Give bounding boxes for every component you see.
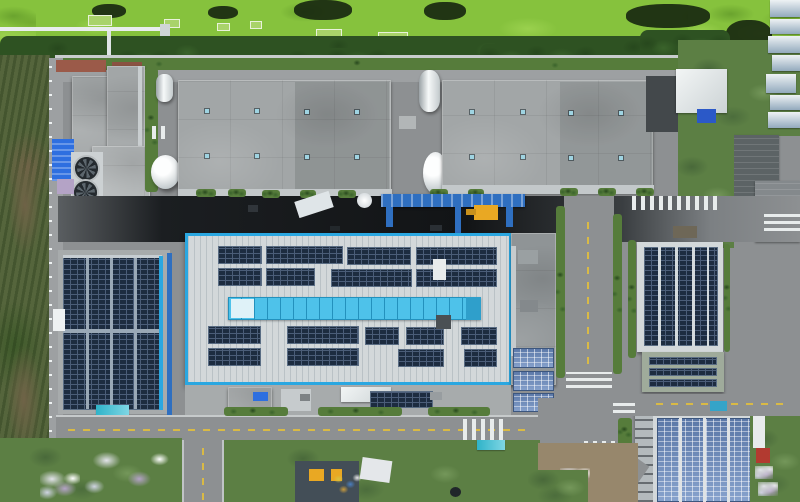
aerial-photo-solar-factory [0, 0, 800, 502]
solar-array [513, 371, 554, 391]
solar-array [416, 247, 497, 265]
skylight-dot [470, 155, 474, 159]
roof-vent [436, 315, 451, 329]
blue-tarp [253, 392, 268, 401]
white-truck [53, 309, 65, 331]
roof-vent [433, 259, 446, 280]
planter [228, 189, 246, 197]
warehouse-a-shade [295, 82, 389, 194]
gatehouse-roof [676, 69, 727, 113]
colorful-debris [330, 470, 364, 496]
panel-walkway [110, 257, 113, 409]
white-tank [156, 74, 173, 102]
crosswalk-dashes [152, 126, 170, 139]
gantry-crane-beam [381, 194, 525, 207]
open-water-patch [424, 2, 466, 20]
solar-array [266, 246, 343, 264]
solar-array [287, 348, 359, 366]
skylight-dot [569, 156, 573, 160]
verge [724, 244, 730, 352]
canal-platform [88, 15, 112, 26]
perimeter-hedge [60, 58, 720, 70]
verge [224, 407, 288, 416]
red-truck [756, 448, 770, 463]
skylight-dot [569, 111, 573, 115]
lane-dashes [587, 214, 589, 364]
tarp-debris-pile [40, 470, 80, 500]
white-silo [151, 155, 180, 189]
planter [598, 188, 616, 196]
crosswalk [613, 399, 635, 413]
skylight-dot [521, 110, 525, 114]
gantry-leg [455, 207, 461, 235]
gantry-leg [506, 207, 513, 227]
parking-pad [646, 76, 678, 132]
roof-edge [63, 255, 162, 258]
blue-truck [697, 109, 716, 123]
equipment [300, 394, 310, 401]
solar-array [218, 268, 262, 286]
skylight-strip-endcap [466, 297, 481, 320]
annex-box [518, 250, 538, 264]
canal-platform [217, 23, 230, 31]
roof-blue-trim [159, 256, 163, 410]
skylight-dot [305, 110, 309, 114]
solar-array [287, 326, 359, 344]
skylight-dot [205, 109, 209, 113]
crosswalk [764, 214, 800, 231]
solar-array [649, 379, 717, 387]
skylight-dot [619, 111, 623, 115]
annex-box [520, 300, 538, 312]
skylight-dot [355, 155, 359, 159]
solar-array [461, 327, 497, 345]
warehouse-b-shade [560, 82, 653, 190]
solar-array [398, 349, 444, 367]
canal-platform [250, 21, 262, 29]
planter [338, 190, 356, 198]
pipeline [0, 27, 166, 31]
verge [613, 214, 622, 374]
excavator [474, 205, 498, 220]
annex-pipe [511, 246, 516, 356]
solar-array [218, 246, 262, 264]
equipment-box [399, 116, 416, 129]
solar-array [208, 348, 261, 366]
white-truck [753, 413, 765, 448]
teal-truck [710, 401, 727, 411]
solar-array [513, 348, 554, 368]
crosswalk [632, 196, 718, 210]
planter [560, 188, 578, 196]
excavator-arm [466, 209, 476, 215]
purple-tarp [57, 179, 74, 194]
yellow-skylight [309, 469, 324, 481]
fence-posts [49, 58, 52, 502]
junk-pile [758, 482, 778, 496]
panel-walkway [692, 247, 695, 346]
crosswalk [463, 419, 504, 440]
center-line-dashes [202, 446, 204, 500]
skylight-strip-highlight [231, 299, 254, 318]
skylight-dot [305, 155, 309, 159]
dirt-pile [673, 226, 697, 238]
equipment [430, 392, 442, 400]
open-water-patch [294, 0, 352, 20]
solar-array [365, 327, 399, 345]
shed-roof [770, 0, 800, 17]
verge [618, 418, 632, 446]
skylight-dot [470, 110, 474, 114]
open-water-patch [626, 4, 710, 28]
open-water-patch [208, 6, 238, 19]
panel-walkway [727, 418, 730, 502]
white-tank [419, 70, 440, 112]
skylight-dot [255, 154, 259, 158]
skylight-dot [521, 155, 525, 159]
curb-line [182, 440, 184, 502]
solar-array [331, 269, 412, 287]
solar-array [649, 357, 717, 365]
solar-array [266, 268, 315, 286]
verge [628, 240, 636, 358]
planter [196, 189, 216, 197]
equipment [330, 226, 340, 231]
skylight-dot [205, 154, 209, 158]
planter [262, 190, 280, 198]
tarp-debris-pile [76, 443, 178, 501]
panel-walkway [675, 247, 678, 346]
skylight-dot [255, 109, 259, 113]
junk-pile [755, 466, 773, 479]
gantry-leg [386, 207, 393, 227]
center-line-dashes [68, 429, 528, 431]
skylight-dot [619, 156, 623, 160]
panel-walkway [134, 257, 137, 409]
equipment [248, 205, 258, 212]
pipeline-post [107, 31, 111, 55]
shed-roof [766, 74, 796, 93]
panel-walkway [63, 329, 162, 333]
solar-array [416, 269, 497, 287]
crosswalk [566, 372, 612, 388]
verge [556, 206, 565, 378]
scrub-corner [528, 470, 588, 502]
panel-walkway [658, 247, 661, 346]
shed-roof [770, 19, 800, 34]
equipment [430, 225, 442, 231]
panel-walkway [679, 418, 682, 502]
skylight-dot [355, 110, 359, 114]
white-tarp [360, 457, 393, 483]
solar-array [347, 247, 411, 265]
solar-array [370, 391, 433, 408]
verge [318, 407, 402, 416]
panel-walkway [86, 257, 89, 409]
blue-pipe-run [167, 253, 172, 421]
white-dome [357, 193, 372, 208]
planter [636, 188, 654, 196]
panel-walkway [707, 247, 709, 346]
wetland-brown-patch [4, 140, 46, 270]
solar-array [208, 326, 261, 344]
shed-roof [772, 55, 800, 71]
shed-roof [768, 112, 800, 128]
panel-walkway [703, 418, 706, 502]
shed-roof [768, 36, 800, 53]
solar-array [464, 349, 497, 367]
solar-array [649, 368, 717, 376]
solar-array [406, 327, 444, 345]
east-road [608, 394, 800, 416]
red-debris-patch [56, 60, 106, 72]
teal-canopy [477, 440, 505, 450]
dark-drum [450, 487, 461, 497]
shed-roof [770, 95, 800, 110]
pipeline-end-box [160, 24, 170, 36]
verge [428, 407, 490, 416]
cooling-fan [75, 157, 98, 180]
